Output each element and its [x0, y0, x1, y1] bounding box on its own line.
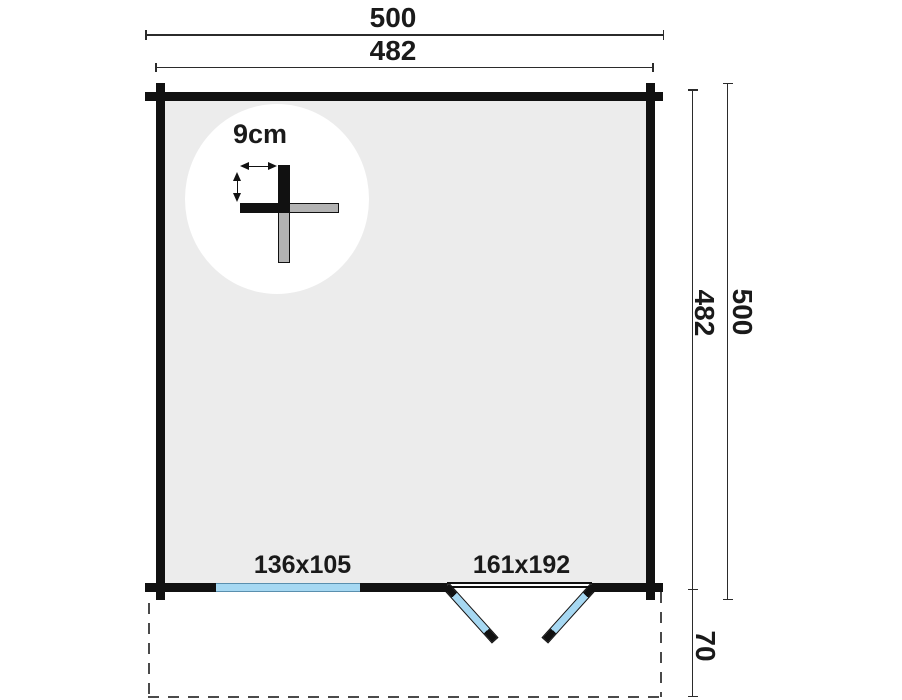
top-wall — [145, 92, 663, 101]
dim-label-depth-inner: 482 — [690, 290, 718, 337]
detail-log-left-arm — [240, 203, 290, 213]
door-size-label: 161x192 — [449, 553, 594, 578]
terrace-outline-right — [660, 592, 662, 697]
dim-tick — [688, 89, 698, 91]
dim-line-depth-outer — [727, 84, 728, 600]
terrace-outline-bottom — [148, 696, 662, 698]
dim-tick — [155, 63, 157, 73]
floor-plan-canvas: 9cm 500 482 482 500 70 136x105 161x192 — [0, 0, 902, 700]
dim-tick — [663, 30, 665, 40]
dim-tick — [723, 83, 733, 85]
dim-label-width-outer: 500 — [343, 4, 443, 32]
door-threshold-inner-line — [449, 586, 590, 587]
dim-tick — [688, 696, 698, 698]
terrace-outline-left — [148, 603, 150, 697]
dim-tick — [723, 599, 733, 601]
thickness-width-arrow-icon — [240, 162, 277, 172]
window-size-label: 136x105 — [230, 553, 375, 578]
bottom-wall-left-segment — [145, 583, 216, 592]
dim-label-overhang: 70 — [691, 630, 719, 661]
door-threshold-outer-line — [447, 582, 592, 583]
window — [216, 583, 360, 592]
dim-line-width-inner — [156, 67, 653, 68]
wall-thickness-label: 9cm — [210, 121, 310, 148]
dim-line-depth-inner — [692, 90, 693, 589]
thickness-height-arrow-icon — [233, 172, 243, 202]
bottom-wall-middle-segment — [360, 583, 447, 592]
dim-label-depth-outer: 500 — [728, 289, 756, 336]
detail-log-bottom-arm — [278, 212, 290, 263]
right-wall — [646, 83, 655, 600]
dim-label-width-inner: 482 — [343, 37, 443, 65]
dim-tick — [145, 30, 147, 40]
detail-log-right-arm — [289, 203, 339, 213]
dim-tick — [652, 63, 654, 73]
left-wall — [156, 83, 165, 600]
bottom-wall-right-segment — [592, 583, 663, 592]
